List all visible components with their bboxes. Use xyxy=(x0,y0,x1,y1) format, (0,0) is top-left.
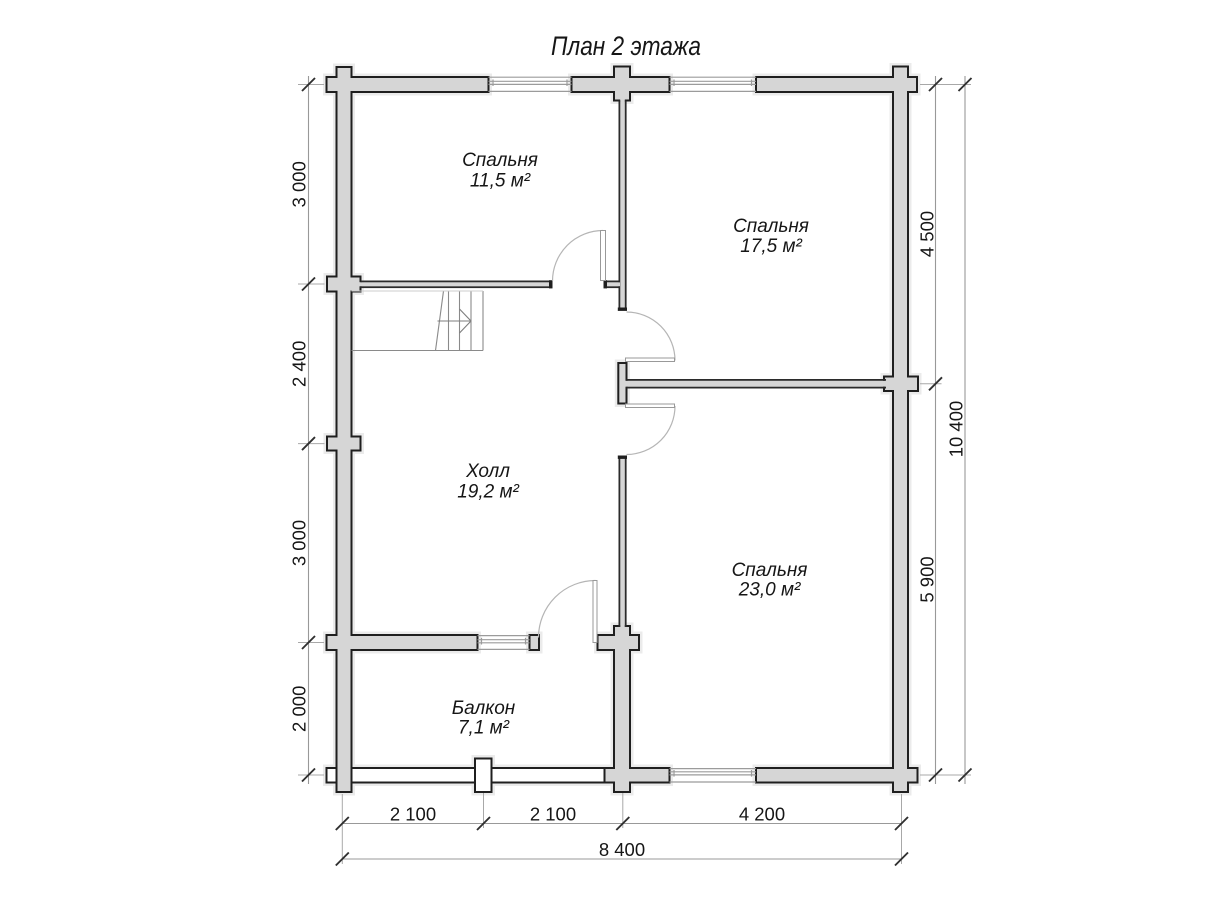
svg-text:17,5 м²: 17,5 м² xyxy=(740,236,802,257)
svg-text:19,2 м²: 19,2 м² xyxy=(457,482,519,503)
svg-text:8 400: 8 400 xyxy=(599,839,645,860)
svg-text:План 2 этажа: План 2 этажа xyxy=(551,31,701,61)
svg-text:23,0 м²: 23,0 м² xyxy=(738,580,801,601)
svg-text:2 100: 2 100 xyxy=(530,804,576,825)
svg-text:2 000: 2 000 xyxy=(289,686,310,732)
svg-text:11,5 м²: 11,5 м² xyxy=(470,171,531,192)
svg-text:3 000: 3 000 xyxy=(289,161,310,207)
svg-text:Спальня: Спальня xyxy=(462,150,538,171)
svg-text:2 400: 2 400 xyxy=(289,341,310,387)
svg-text:7,1 м²: 7,1 м² xyxy=(458,718,510,739)
svg-text:2 100: 2 100 xyxy=(390,804,436,825)
svg-text:Спальня: Спальня xyxy=(732,560,808,581)
svg-text:10 400: 10 400 xyxy=(946,401,967,458)
svg-text:Спальня: Спальня xyxy=(733,216,809,237)
svg-text:4 500: 4 500 xyxy=(917,211,938,257)
svg-text:4 200: 4 200 xyxy=(739,804,785,825)
svg-text:Балкон: Балкон xyxy=(452,698,516,719)
svg-text:5 900: 5 900 xyxy=(917,556,938,602)
svg-text:Холл: Холл xyxy=(465,461,510,482)
svg-text:3 000: 3 000 xyxy=(289,520,310,566)
